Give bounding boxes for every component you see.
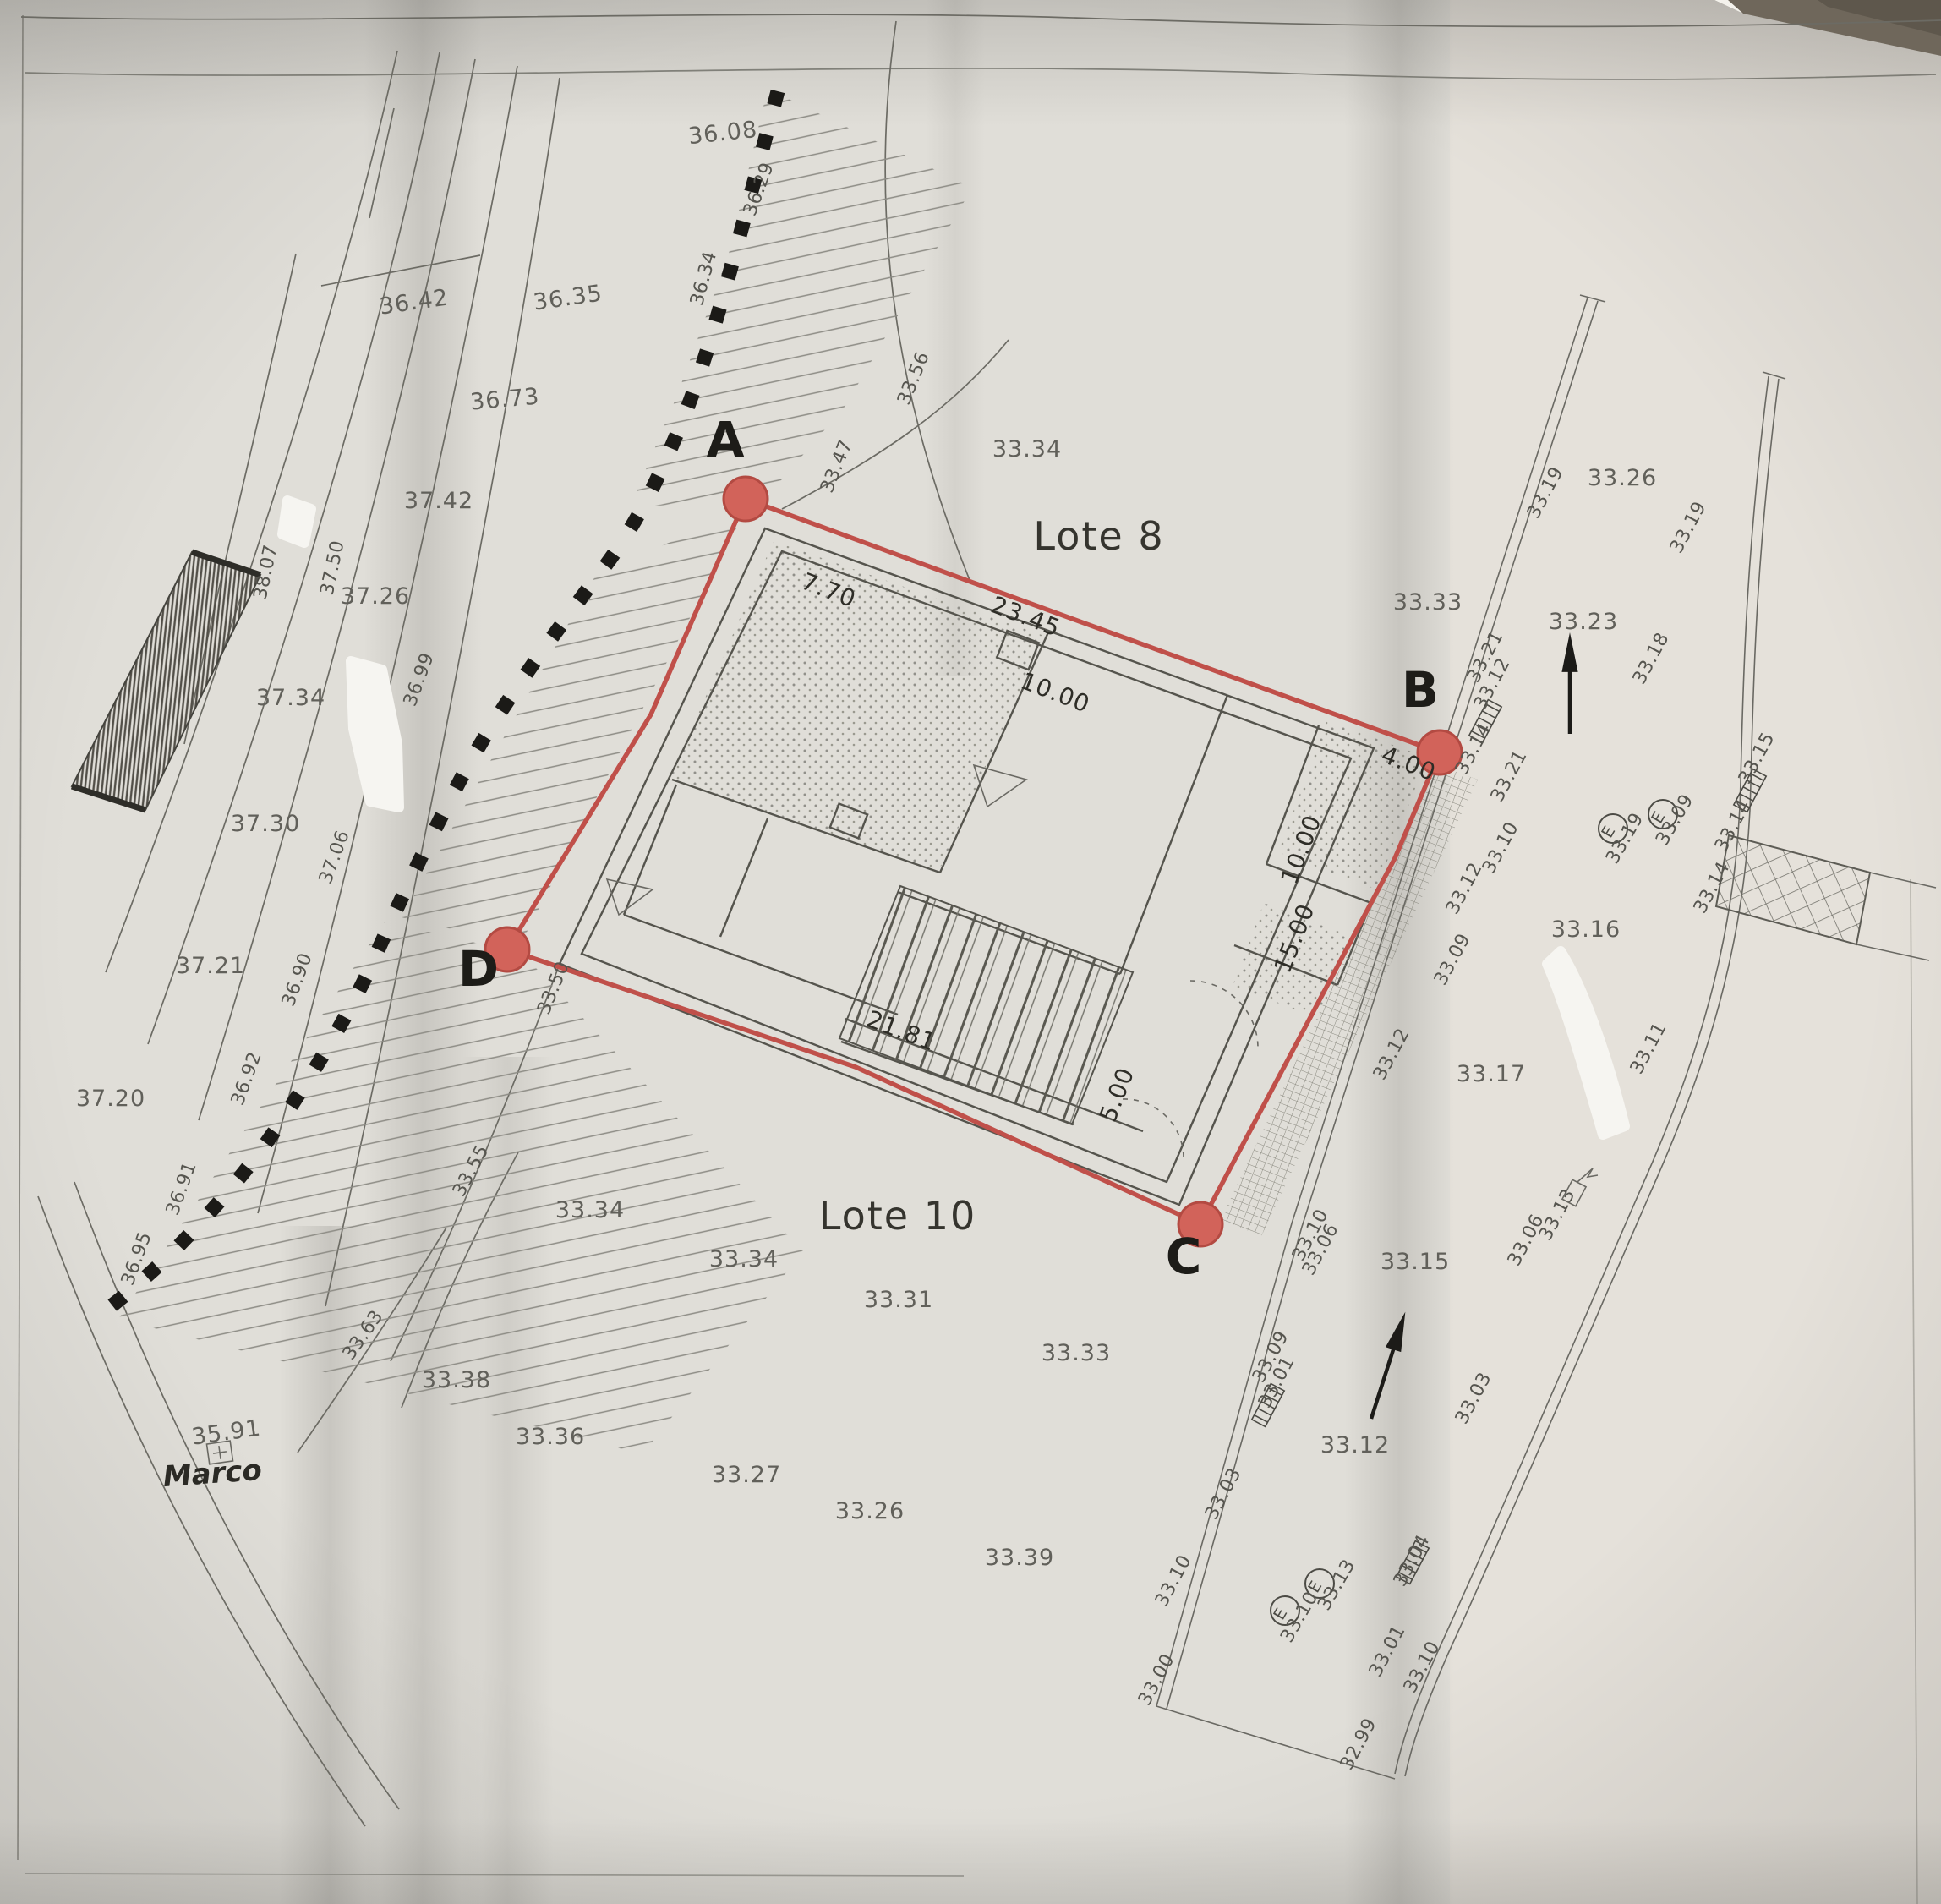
lot-label: Lote 10 (819, 1193, 976, 1239)
elevation-label: 33.36 (516, 1424, 585, 1450)
elevation-label: 33.34 (709, 1246, 779, 1272)
elevation-label: 33.23 (1549, 609, 1618, 635)
elevation-label: 37.21 (176, 953, 245, 979)
vertex-label: A (707, 411, 745, 468)
plan-canvas: EEEE 36.0836.4236.3536.7337.4237.2637.34… (0, 0, 1941, 1904)
scanned-plan-photo: EEEE 36.0836.4236.3536.7337.4237.2637.34… (0, 0, 1941, 1904)
vertex-label: B (1402, 661, 1439, 719)
elevation-label: 37.30 (231, 811, 300, 837)
elevation-label: 33.26 (1588, 465, 1657, 491)
vertex-label: C (1166, 1228, 1202, 1285)
elevation-label: 33.34 (992, 436, 1062, 462)
elevation-label: 37.20 (76, 1086, 145, 1112)
lot-label: Lote 8 (1033, 513, 1164, 559)
elevation-label: 33.17 (1457, 1061, 1526, 1087)
elevation-label: 33.15 (1381, 1249, 1450, 1275)
elevation-label: 33.12 (1320, 1432, 1390, 1458)
elevation-label: 33.31 (864, 1287, 933, 1313)
elevation-label: 33.33 (1393, 589, 1463, 616)
elevation-label: 33.26 (835, 1498, 905, 1524)
elevation-label: 33.27 (712, 1462, 781, 1488)
elevation-label: 37.42 (404, 488, 473, 514)
elevation-label: 37.26 (341, 583, 410, 610)
vertex-dot-A (724, 477, 768, 521)
vertex-label: D (458, 940, 499, 998)
elevation-label: Marco (161, 1453, 263, 1494)
elevation-label: 33.38 (422, 1367, 491, 1393)
elevation-label: 37.34 (256, 685, 325, 711)
elevation-label: 33.33 (1042, 1340, 1111, 1366)
elevation-label: 33.16 (1551, 916, 1621, 943)
elevation-label: 33.34 (555, 1197, 625, 1223)
elevation-label: 33.39 (985, 1545, 1054, 1571)
